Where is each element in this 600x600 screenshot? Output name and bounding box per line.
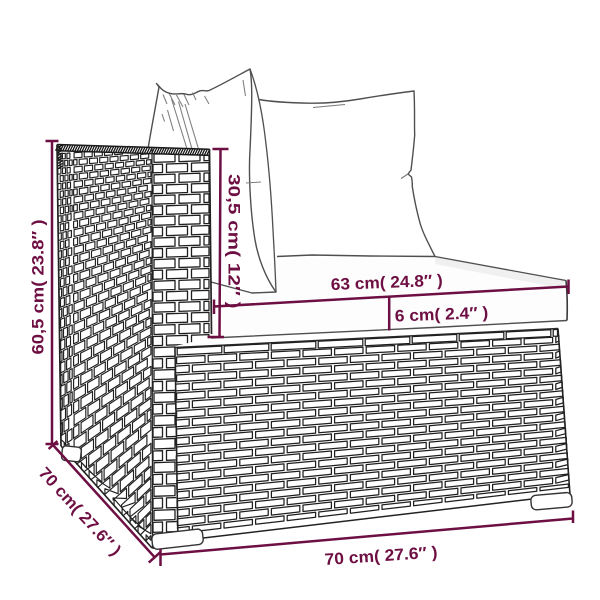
svg-text:60,5 cm( 23.8″ ): 60,5 cm( 23.8″ ): [29, 220, 47, 355]
svg-text:6 cm( 2.4″ ): 6 cm( 2.4″ ): [394, 304, 488, 326]
svg-text:30,5 cm( 12″ ): 30,5 cm( 12″ ): [224, 174, 242, 309]
